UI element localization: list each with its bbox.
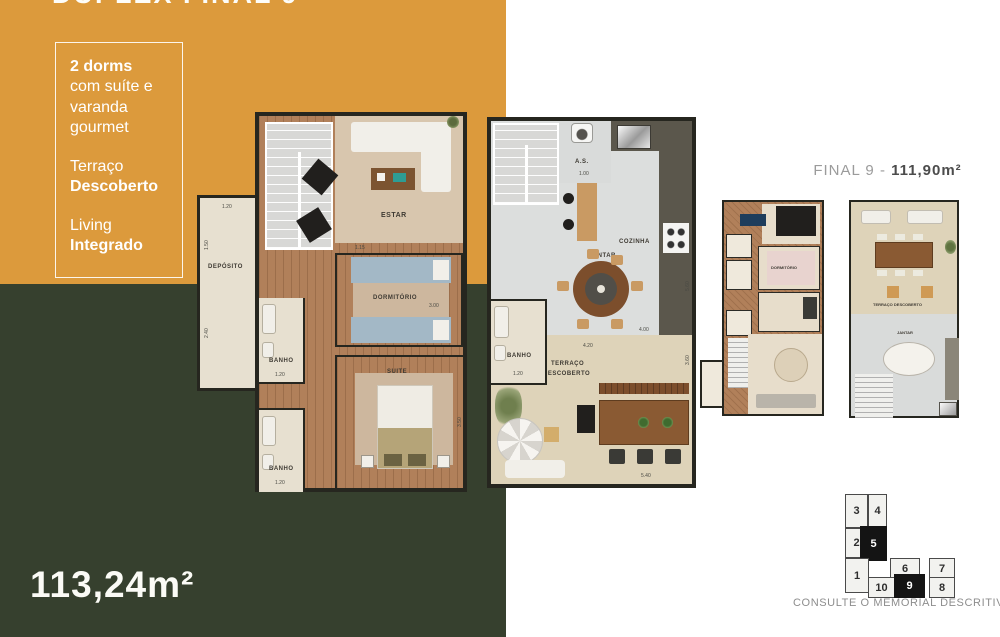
unit-area-value: 111,90m² [891, 162, 962, 179]
dining-chair [577, 319, 589, 329]
brochure-page: DUPLEX FINAL 9 2 dorms com suíte e varan… [0, 0, 1000, 637]
room-banho-upper: BANHO 1.20 [491, 299, 547, 385]
single-bed-1 [351, 257, 451, 283]
mini-label-jantar: JANTAR [897, 330, 913, 335]
mini-armchair [887, 286, 899, 298]
dim-label: 1.50 [204, 240, 210, 250]
miniplan-lower: DORMITÓRIO [700, 196, 833, 425]
room-label-banho2: BANHO [269, 466, 294, 472]
dining-chair [587, 249, 599, 259]
mini-banho-2 [726, 260, 752, 290]
mini-stair [728, 338, 748, 388]
keyplan-unit-3: 3 [845, 494, 868, 528]
room-label-estar: ESTAR [381, 212, 407, 219]
floorplan-lower: DEPÓSITO 1.20 1.50 2.40 ESTAR 1 [197, 112, 467, 492]
dim-label: 5.60 [685, 281, 691, 291]
dim-label: 1.00 [579, 171, 589, 177]
room-suite: SUITE 3.50 [335, 355, 463, 488]
staircase-upper [493, 123, 559, 205]
dim-label: 4.00 [639, 327, 649, 333]
mini-label-terraco: TERRAÇO DESCOBERTO [873, 302, 922, 307]
mini-kitchen-counter [945, 338, 959, 400]
feature-terraco-label: Terraço [70, 157, 174, 177]
dining-table-round [573, 261, 629, 317]
table-centerpiece [597, 285, 605, 293]
mini-spa [740, 214, 766, 226]
mini-despensa [700, 360, 724, 408]
dim-label: 1.20 [275, 372, 285, 378]
terrace-chair [609, 449, 625, 464]
mini-lounger [907, 210, 943, 224]
keyplan-caption: CONSULTE O MEMORIAL DESCRITIVO [793, 597, 983, 609]
mini-dormitorio-2 [758, 292, 820, 332]
room-as: A.S. 1.00 [559, 121, 611, 183]
terrace-table [599, 400, 689, 445]
pillow [433, 260, 449, 280]
keyplan-unit-1: 1 [845, 558, 869, 593]
mini-label-dormitorio: DORMITÓRIO [771, 265, 797, 270]
bed-cushion [384, 454, 402, 466]
mini-lounger [861, 210, 891, 224]
umbrella [497, 418, 543, 464]
stair-rail [525, 145, 528, 203]
dim-label: 5.40 [641, 473, 651, 479]
toilet [494, 345, 506, 361]
mini-chairs-bottom [877, 270, 931, 276]
miniplan-lower-body: DORMITÓRIO [722, 200, 824, 416]
unit-name: FINAL 9 - [813, 162, 891, 179]
room-banho-2: BANHO 1.20 [259, 408, 305, 492]
single-bed-2 [351, 317, 451, 343]
mini-sofa [756, 394, 816, 408]
feature-dorms-bold: 2 dorms [70, 57, 174, 77]
keyplan-unit-5: 5 [860, 526, 887, 561]
bar-stool [563, 193, 574, 204]
nightstand [437, 455, 450, 468]
dim-label: 1.15 [355, 245, 365, 251]
keyplan-unit-8: 8 [929, 577, 955, 598]
room-label-terraco-1: TERRAÇO [551, 361, 584, 367]
nightstand [361, 455, 374, 468]
dim-label: 2.40 [204, 328, 210, 338]
keyplan-unit-9: 9 [894, 574, 925, 598]
mini-suite [762, 204, 820, 244]
mini-oval-table [883, 342, 935, 376]
plant [447, 116, 459, 128]
cropped-page-title: DUPLEX FINAL 9 [52, 0, 299, 10]
bar-counter [577, 183, 597, 241]
keyplan-unit-4: 4 [868, 494, 887, 528]
dim-label: 1.20 [222, 204, 232, 210]
room-label-dormitorio: DORMITÓRIO [373, 295, 417, 301]
bathroom-vanity [262, 304, 276, 334]
dim-label: 4.20 [583, 343, 593, 349]
room-dormitorio: DORMITÓRIO 3.00 [335, 253, 463, 347]
unit-area-label: FINAL 9 - 111,90m² [790, 162, 985, 179]
dim-label: 1.20 [513, 371, 523, 377]
washer-icon [571, 123, 593, 143]
mini-terraco: TERRAÇO DESCOBERTO [851, 202, 957, 314]
plan-lower-main: ESTAR 1.15 DORMITÓRIO 3.00 [255, 112, 467, 492]
feature-terraco-bold: Descoberto [70, 177, 174, 197]
dining-chair [611, 255, 623, 265]
bathroom-vanity [262, 416, 276, 446]
mini-armchair [921, 286, 933, 298]
total-area-label: 113,24m² [30, 564, 194, 606]
dining-chair [611, 319, 623, 329]
keyplan: 3 4 2 5 1 6 7 10 9 8 [840, 488, 990, 608]
bed-cushion [408, 454, 426, 466]
mini-fridge [939, 402, 957, 416]
room-banho-1: BANHO 1.20 [259, 298, 305, 384]
mini-estar [748, 334, 822, 414]
lounge-chair [544, 427, 559, 442]
room-label-terraco-2: DESCOBERTO [543, 371, 590, 377]
stove-icon [663, 223, 689, 253]
floorplan-upper: A.S. 1.00 COZINHA JANTAR 1.20 [487, 117, 696, 488]
grill [577, 405, 595, 433]
double-bed [377, 385, 433, 469]
miniplan-upper-body: TERRAÇO DESCOBERTO JANTAR [849, 200, 959, 418]
room-deposito: DEPÓSITO 1.20 1.50 2.40 [197, 195, 261, 391]
feature-living-label: Living [70, 216, 174, 236]
dining-chair [557, 281, 569, 291]
room-label-as: A.S. [575, 159, 589, 165]
mini-terrace-table [875, 242, 933, 268]
room-label-suite: SUITE [387, 369, 407, 375]
room-label-cozinha: COZINHA [619, 239, 650, 245]
mini-chair-dark [803, 297, 817, 319]
wall-shelf [599, 383, 689, 394]
feature-living-bold: Integrado [70, 236, 174, 256]
table-decor-teal [393, 173, 406, 182]
keyplan-unit-7: 7 [929, 558, 955, 579]
keyplan-unit-10: 10 [868, 577, 895, 598]
terrace-chair [637, 449, 653, 464]
room-label-deposito: DEPÓSITO [208, 264, 243, 270]
miniplan-upper: TERRAÇO DESCOBERTO JANTAR [845, 196, 965, 425]
mini-bed-dark [776, 206, 816, 236]
bathroom-vanity [494, 306, 509, 338]
terrace-chair [665, 449, 681, 464]
feature-dorms-rest: com suíte e varanda gourmet [70, 77, 174, 138]
mini-dormitorio-1: DORMITÓRIO [758, 246, 820, 290]
mini-round-rug [774, 348, 808, 382]
plant [662, 417, 673, 428]
dim-label: 3.50 [457, 417, 463, 427]
stair-rail [298, 152, 301, 248]
sofa-chaise [421, 122, 451, 192]
room-estar: ESTAR [335, 116, 463, 243]
dining-chair [631, 281, 643, 291]
toilet [262, 342, 274, 358]
plant [638, 417, 649, 428]
mini-stair-upper [855, 374, 893, 418]
pillow [433, 320, 449, 340]
mini-plant [945, 240, 956, 254]
dim-label: 3.60 [685, 355, 691, 365]
mini-hall [726, 310, 752, 336]
dim-label: 1.20 [275, 480, 285, 486]
mini-banho-1 [726, 234, 752, 258]
room-label-banho1: BANHO [269, 358, 294, 364]
mini-chairs-top [877, 234, 931, 240]
bar-stool [563, 219, 574, 230]
room-label-banho-upper: BANHO [507, 353, 532, 359]
lounge-sofa [505, 460, 565, 478]
dim-label: 3.00 [429, 303, 439, 309]
table-decor [377, 173, 385, 181]
fridge [617, 125, 651, 149]
features-box: 2 dorms com suíte e varanda gourmet Terr… [55, 42, 183, 278]
